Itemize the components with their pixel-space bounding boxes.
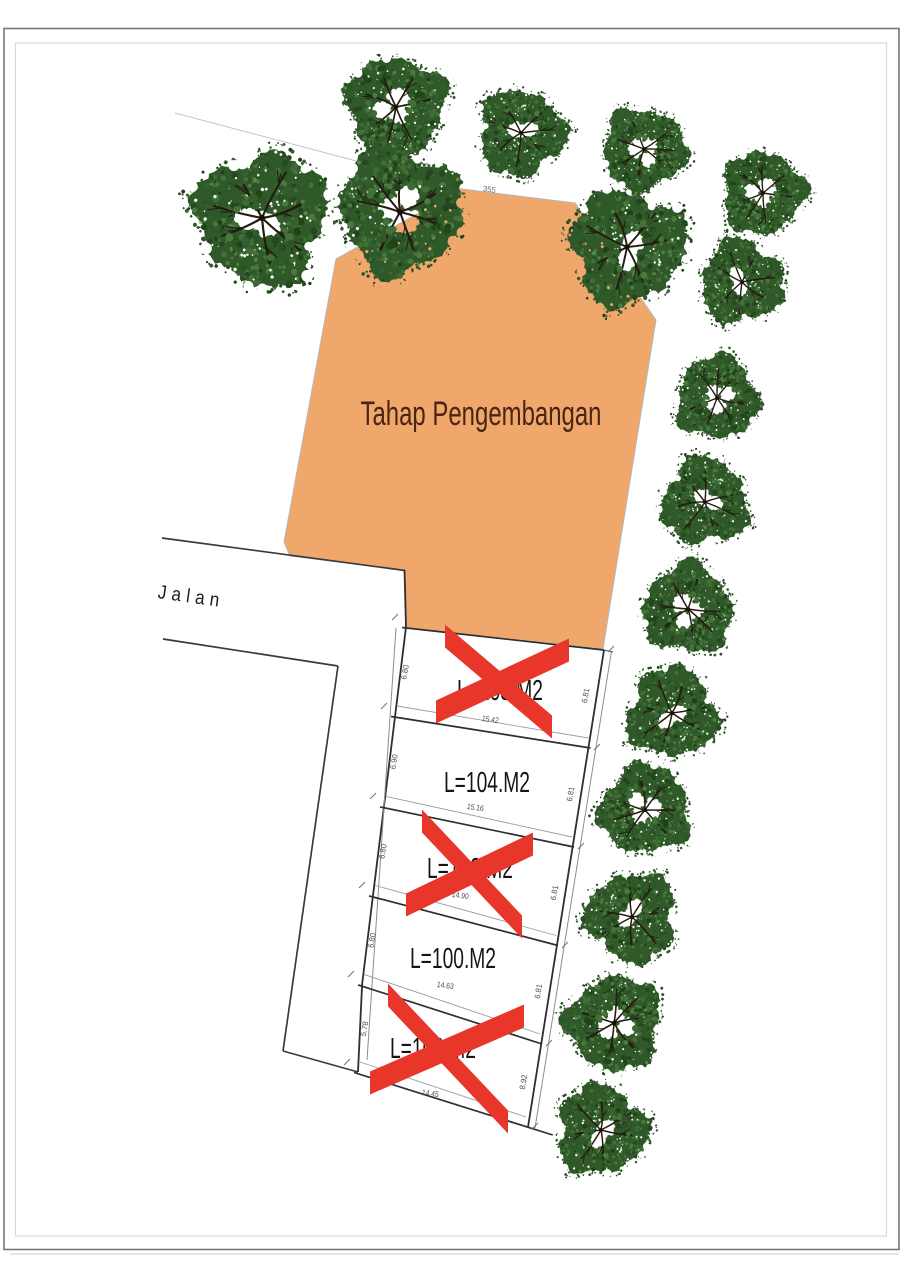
- svg-text:Jalan: Jalan: [157, 581, 226, 612]
- svg-text:355: 355: [482, 184, 497, 195]
- svg-text:6.80: 6.80: [399, 663, 411, 680]
- svg-text:Tahap Pengembangan: Tahap Pengembangan: [361, 395, 602, 433]
- svg-text:L=100.M2: L=100.M2: [410, 943, 496, 975]
- svg-text:6.80: 6.80: [366, 932, 378, 949]
- svg-text:15.16: 15.16: [466, 802, 485, 813]
- svg-text:6.81: 6.81: [549, 884, 561, 901]
- svg-text:14.45: 14.45: [421, 1088, 440, 1099]
- svg-text:8.92: 8.92: [518, 1073, 530, 1090]
- svg-text:6.90: 6.90: [388, 753, 400, 770]
- svg-text:6.81: 6.81: [580, 687, 592, 704]
- svg-text:L=104.M2: L=104.M2: [444, 767, 530, 799]
- svg-text:15.42: 15.42: [481, 714, 500, 725]
- svg-text:6.81: 6.81: [565, 785, 577, 802]
- svg-text:6.81: 6.81: [533, 983, 545, 1000]
- svg-text:14.63: 14.63: [436, 980, 455, 991]
- svg-text:6.80: 6.80: [377, 843, 389, 860]
